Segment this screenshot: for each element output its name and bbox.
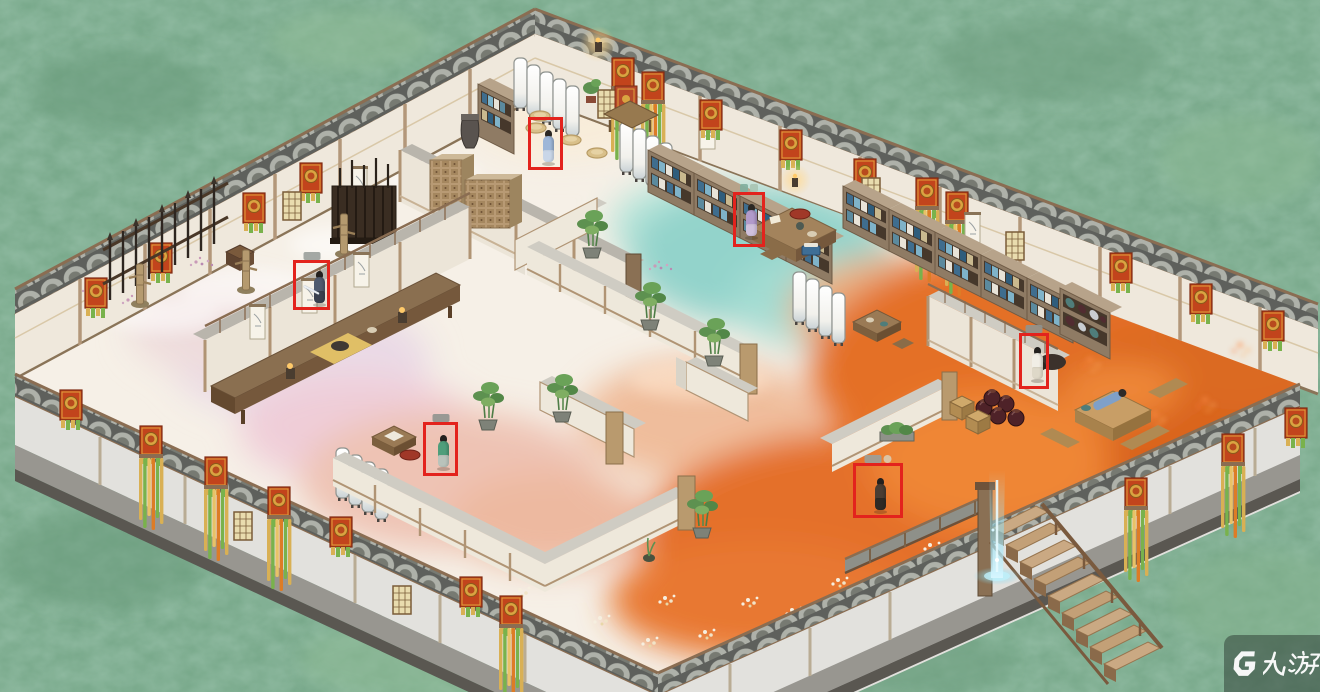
- outer-banner: [460, 577, 482, 617]
- npc-name-tag-icon: [432, 414, 449, 422]
- lattice-window: [234, 512, 252, 540]
- npc-shadow: [437, 467, 450, 471]
- wall-banner: [700, 100, 722, 140]
- npc-skirt: [875, 498, 886, 510]
- book-stack: [802, 243, 820, 255]
- bronze-urn: [461, 114, 479, 148]
- jiuyou-g-logo-icon: [1233, 649, 1258, 679]
- npc-highlight-library-reader[interactable]: [733, 192, 765, 247]
- npc-figure: [874, 478, 887, 512]
- npc-skirt: [1032, 367, 1043, 379]
- hanging-scroll: [353, 252, 370, 287]
- npc-skirt: [543, 150, 554, 162]
- npc-status-icon: [750, 184, 758, 192]
- npc-figure: [437, 435, 450, 469]
- npc-skirt: [746, 224, 757, 236]
- outer-banner: [60, 390, 82, 430]
- hanging-scroll: [249, 304, 266, 339]
- npc-status-icon: [740, 184, 748, 192]
- jiuyou-watermark: 九游: [1224, 635, 1320, 692]
- npc-figure: [1031, 347, 1044, 381]
- wall-end-panel: [606, 412, 623, 464]
- npc-overhead-icons: [432, 414, 449, 422]
- npc-figure: [313, 271, 326, 305]
- wall-banner: [243, 193, 265, 233]
- incense-bowl: [331, 341, 349, 351]
- isometric-scene: [0, 0, 1320, 692]
- wall-banner: [1262, 311, 1284, 351]
- npc-shadow: [313, 303, 326, 307]
- npc-highlight-green-robed-steward[interactable]: [423, 422, 458, 476]
- npc-name-tag-icon: [303, 252, 320, 260]
- wall-banner: [1110, 253, 1132, 293]
- npc-overhead-icons: [740, 184, 758, 192]
- lattice-window: [1006, 232, 1024, 260]
- npc-overhead-icons: [865, 455, 892, 463]
- lattice-window: [393, 586, 411, 614]
- npc-highlight-white-robed-cook[interactable]: [1019, 333, 1049, 389]
- npc-skirt: [438, 455, 449, 467]
- npc-shadow: [745, 236, 758, 240]
- npc-highlight-patrolling-disciple[interactable]: [853, 463, 903, 518]
- npc-figure: [542, 130, 555, 164]
- npc-name-tag-icon: [1026, 325, 1043, 333]
- red-cushion: [400, 450, 420, 460]
- jiuyou-logo-text-glyphs: [1263, 649, 1320, 679]
- game-viewport: 九游: [0, 0, 1320, 692]
- outer-banner: [1285, 408, 1307, 448]
- wall-banner: [300, 163, 322, 203]
- wall-banner: [780, 130, 802, 170]
- npc-highlight-meditating-disciple[interactable]: [528, 117, 563, 170]
- npc-shadow: [874, 510, 887, 514]
- npc-status-icon: [884, 455, 892, 463]
- npc-shadow: [542, 162, 555, 166]
- npc-shadow: [1031, 379, 1044, 383]
- red-cushion: [790, 209, 810, 219]
- outer-banner: [330, 517, 352, 557]
- npc-overhead-icons: [1026, 325, 1043, 333]
- npc-highlight-sword-practitioner[interactable]: [293, 260, 330, 310]
- npc-figure: [745, 204, 758, 238]
- lattice-window: [283, 192, 301, 220]
- npc-name-tag-icon: [865, 455, 882, 463]
- npc-overhead-icons: [303, 252, 320, 260]
- wall-banner: [1190, 284, 1212, 324]
